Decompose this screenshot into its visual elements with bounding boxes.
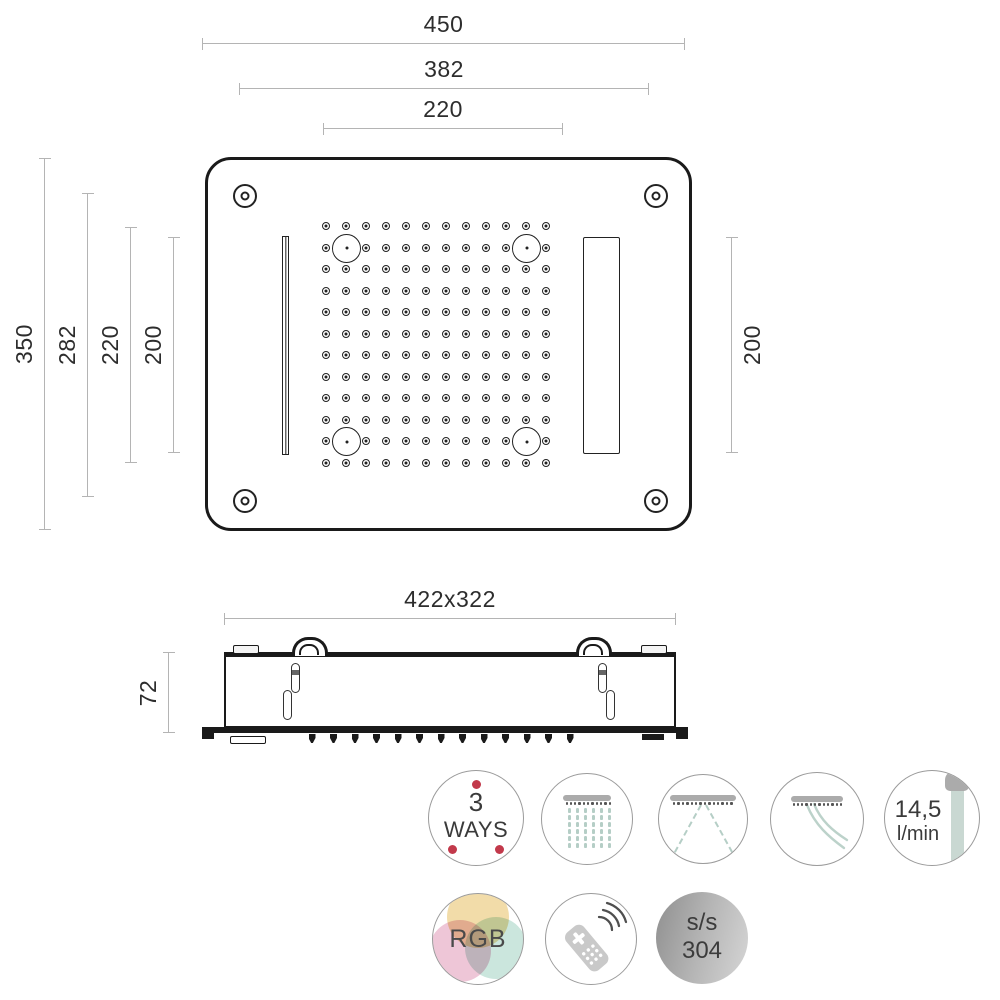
inner-slot-right-upper xyxy=(598,663,607,693)
rain-nozzle xyxy=(402,373,410,381)
rain-nozzle xyxy=(522,222,530,230)
rain-nozzle xyxy=(542,437,550,445)
icon-nozzle-dot xyxy=(726,802,728,805)
dim-left-350-label: 350 xyxy=(11,324,38,364)
rain-nozzle xyxy=(322,459,330,467)
side-nozzle-tooth xyxy=(545,734,552,743)
rain-nozzle xyxy=(542,351,550,359)
stainless-label-bottom: 304 xyxy=(656,938,748,964)
rain-nozzle xyxy=(542,308,550,316)
rain-nozzle xyxy=(422,459,430,467)
side-nozzle-tooth xyxy=(524,734,531,743)
rain-nozzle xyxy=(362,394,370,402)
side-nozzle-tooth xyxy=(481,734,488,743)
rain-nozzle xyxy=(442,244,450,252)
rain-nozzle xyxy=(522,265,530,273)
rain-nozzle xyxy=(382,308,390,316)
rain-nozzle xyxy=(342,416,350,424)
rain-nozzle xyxy=(402,308,410,316)
icon-nozzle-dot xyxy=(578,802,580,805)
rain-nozzle xyxy=(402,265,410,273)
rain-drop xyxy=(584,815,587,820)
waterfall-streams xyxy=(771,773,863,865)
icon-nozzle-dot xyxy=(673,802,675,805)
icon-nozzle-dot xyxy=(805,803,807,806)
mounting-ring-right-inner xyxy=(583,644,603,655)
rain-nozzle xyxy=(442,351,450,359)
rain-nozzle xyxy=(422,265,430,273)
rain-nozzle xyxy=(322,437,330,445)
inner-slot-right-lower xyxy=(606,690,615,720)
dim-left-282-label: 282 xyxy=(54,325,81,365)
rain-nozzle xyxy=(382,351,390,359)
icon-nozzle-dot xyxy=(717,802,719,805)
dim-side-72: 72 xyxy=(168,652,169,733)
rain-drop xyxy=(584,836,587,841)
rain-nozzle xyxy=(542,330,550,338)
rain-nozzle xyxy=(482,394,490,402)
rain-nozzle xyxy=(462,330,470,338)
rain-drop xyxy=(592,822,595,827)
rain-drop xyxy=(600,815,603,820)
rain-drop xyxy=(576,836,579,841)
rain-nozzle xyxy=(502,373,510,381)
rain-nozzle xyxy=(442,308,450,316)
rain-nozzle xyxy=(542,394,550,402)
inner-slot-left-lower xyxy=(283,690,292,720)
rain-nozzle xyxy=(502,287,510,295)
rain-nozzle xyxy=(422,287,430,295)
rain-nozzle xyxy=(422,222,430,230)
rain-drop xyxy=(600,822,603,827)
rain-nozzle xyxy=(402,437,410,445)
rain-nozzle xyxy=(482,244,490,252)
rain-drop xyxy=(608,808,611,813)
icon-nozzle-dot xyxy=(730,802,732,805)
side-nozzle-tooth xyxy=(438,734,445,743)
rain-nozzle xyxy=(382,244,390,252)
dim-top-382-label: 382 xyxy=(424,56,464,83)
rain-nozzle xyxy=(422,373,430,381)
rain-drop xyxy=(592,829,595,834)
rain-drop xyxy=(568,822,571,827)
rgb-light-icon: RGB xyxy=(432,893,524,985)
side-nozzle-tooth xyxy=(395,734,402,743)
rain-nozzle xyxy=(442,459,450,467)
rain-nozzle xyxy=(442,265,450,273)
rain-nozzle xyxy=(342,308,350,316)
rain-nozzle xyxy=(362,351,370,359)
dim-left-350: 350 xyxy=(44,158,45,530)
rain-head-bar xyxy=(563,795,611,801)
icon-nozzle-dot xyxy=(831,803,833,806)
rain-nozzle xyxy=(382,265,390,273)
rain-nozzle xyxy=(542,459,550,467)
dim-left-220: 220 xyxy=(130,227,131,463)
rain-nozzle xyxy=(502,308,510,316)
rain-nozzle xyxy=(322,244,330,252)
rain-drop xyxy=(576,829,579,834)
flange-end-right xyxy=(676,732,688,739)
rain-nozzle xyxy=(482,416,490,424)
dim-top-450: 450 xyxy=(202,43,685,44)
top-clip-right xyxy=(641,645,667,654)
rain-nozzle xyxy=(442,287,450,295)
waterfall-spray-icon xyxy=(770,772,864,866)
rain-nozzle xyxy=(442,416,450,424)
shower-head-top-view xyxy=(205,157,692,531)
rain-nozzle xyxy=(322,330,330,338)
rain-nozzle xyxy=(402,330,410,338)
rain-drop xyxy=(568,836,571,841)
dim-left-200-label: 200 xyxy=(140,325,167,365)
icon-nozzle-dot xyxy=(574,802,576,805)
rain-drop xyxy=(576,808,579,813)
inner-slot-left-upper xyxy=(291,663,300,693)
rain-drop xyxy=(592,843,595,848)
rain-nozzle xyxy=(522,416,530,424)
rain-nozzle xyxy=(502,330,510,338)
icon-nozzle-dot xyxy=(793,803,795,806)
dim-side-422x322-label: 422x322 xyxy=(404,586,496,613)
side-nozzle-tooth xyxy=(502,734,509,743)
dim-top-382: 382 xyxy=(239,88,649,89)
ceiling-flange xyxy=(202,727,688,733)
rain-nozzle xyxy=(382,459,390,467)
rain-nozzle xyxy=(522,459,530,467)
icon-nozzle-dot xyxy=(699,802,701,805)
rain-nozzle xyxy=(442,373,450,381)
rain-nozzle xyxy=(422,416,430,424)
led-spotlight xyxy=(332,234,361,263)
rain-nozzle xyxy=(342,373,350,381)
rain-nozzle xyxy=(322,265,330,273)
icon-nozzle-dot xyxy=(713,802,715,805)
rain-nozzle xyxy=(342,459,350,467)
icon-nozzle-dot xyxy=(591,802,593,805)
led-spotlight xyxy=(512,234,541,263)
flow-pipe-cap xyxy=(945,771,969,791)
dim-right-200: 200 xyxy=(731,237,732,453)
rain-drop xyxy=(576,815,579,820)
rain-nozzle xyxy=(362,308,370,316)
rain-drop xyxy=(584,808,587,813)
dim-left-282: 282 xyxy=(87,193,88,497)
rain-drop xyxy=(608,815,611,820)
rain-nozzle xyxy=(382,287,390,295)
dim-side-72-label: 72 xyxy=(135,679,162,706)
rain-nozzle xyxy=(322,394,330,402)
rain-nozzle xyxy=(462,265,470,273)
three-ways-number: 3 xyxy=(429,787,523,818)
rain-nozzle xyxy=(382,416,390,424)
rain-spray-icon xyxy=(541,773,633,865)
rain-drop xyxy=(600,843,603,848)
rain-nozzle xyxy=(542,287,550,295)
rain-nozzle xyxy=(322,308,330,316)
rain-drop xyxy=(584,822,587,827)
icon-nozzle-dot xyxy=(708,802,710,805)
rain-nozzle xyxy=(442,222,450,230)
rain-nozzle xyxy=(382,437,390,445)
rain-nozzle xyxy=(442,330,450,338)
rgb-label: RGB xyxy=(433,925,523,954)
rain-nozzle xyxy=(462,351,470,359)
way-dot-bottom-right xyxy=(495,845,504,854)
dim-right-200-label: 200 xyxy=(739,325,766,365)
rain-nozzle xyxy=(402,416,410,424)
side-nozzle-tooth xyxy=(459,734,466,743)
rain-nozzle xyxy=(502,459,510,467)
rain-nozzle xyxy=(542,244,550,252)
icon-nozzle-dot xyxy=(566,802,568,805)
rain-nozzle xyxy=(382,373,390,381)
flow-rate-unit: l/min xyxy=(889,823,947,845)
rain-nozzle xyxy=(362,222,370,230)
rain-nozzle xyxy=(522,287,530,295)
mist-spray-icon xyxy=(658,774,748,864)
dim-top-450-label: 450 xyxy=(424,11,464,38)
rain-nozzle xyxy=(342,394,350,402)
rain-nozzle xyxy=(322,373,330,381)
rain-nozzle xyxy=(422,394,430,402)
icon-nozzle-dot xyxy=(583,802,585,805)
rain-nozzle xyxy=(402,459,410,467)
rain-nozzle xyxy=(362,265,370,273)
rain-nozzle xyxy=(422,330,430,338)
rain-drop xyxy=(608,822,611,827)
rain-nozzle xyxy=(382,394,390,402)
rain-nozzle xyxy=(362,244,370,252)
rain-nozzle xyxy=(462,244,470,252)
rain-nozzle xyxy=(502,222,510,230)
rain-nozzle xyxy=(362,416,370,424)
icon-nozzle-dot xyxy=(797,803,799,806)
rain-nozzle xyxy=(362,330,370,338)
dim-top-220-label: 220 xyxy=(423,96,463,123)
rain-nozzle xyxy=(342,330,350,338)
rain-nozzle xyxy=(422,244,430,252)
rain-nozzle xyxy=(502,265,510,273)
rain-nozzle xyxy=(342,222,350,230)
rain-nozzle xyxy=(482,308,490,316)
remote-control-graphic xyxy=(546,894,636,984)
mounting-ring-left-inner xyxy=(299,644,319,655)
rain-nozzle xyxy=(482,373,490,381)
rain-nozzle xyxy=(362,373,370,381)
icon-nozzle-dot xyxy=(721,802,723,805)
three-ways-word: WAYS xyxy=(429,817,523,843)
rain-drop xyxy=(608,829,611,834)
rain-nozzle xyxy=(482,459,490,467)
rain-drop xyxy=(608,836,611,841)
rain-nozzle xyxy=(362,437,370,445)
rain-nozzle xyxy=(322,222,330,230)
rain-drop xyxy=(600,808,603,813)
rain-drop xyxy=(584,843,587,848)
rain-nozzle xyxy=(442,437,450,445)
remote-control-icon xyxy=(545,893,637,985)
stainless-steel-icon: s/s 304 xyxy=(656,892,748,984)
rain-nozzle xyxy=(402,244,410,252)
rain-nozzle xyxy=(482,351,490,359)
technical-drawing-canvas: 450 382 220 350 282 220 200 200 422x322 … xyxy=(0,0,1000,1000)
rain-nozzle xyxy=(522,394,530,402)
icon-nozzle-dot xyxy=(695,802,697,805)
icon-nozzle-dot xyxy=(682,802,684,805)
rain-nozzle xyxy=(322,287,330,295)
rain-drop xyxy=(608,843,611,848)
rain-nozzle xyxy=(322,351,330,359)
rain-nozzle xyxy=(422,308,430,316)
rain-nozzle xyxy=(522,308,530,316)
rain-nozzle xyxy=(542,222,550,230)
rain-drop xyxy=(568,808,571,813)
icon-nozzle-dot xyxy=(704,802,706,805)
rain-drop xyxy=(568,815,571,820)
rain-drop xyxy=(576,843,579,848)
icon-nozzle-dot xyxy=(596,802,598,805)
mist-jet-left xyxy=(674,805,702,853)
icon-nozzle-dot xyxy=(677,802,679,805)
rain-nozzle xyxy=(482,222,490,230)
rain-nozzle xyxy=(462,373,470,381)
rain-nozzle xyxy=(542,373,550,381)
rain-nozzle xyxy=(402,394,410,402)
rain-nozzle xyxy=(502,437,510,445)
rain-drop xyxy=(592,808,595,813)
led-spotlight xyxy=(332,427,361,456)
rain-nozzle xyxy=(402,287,410,295)
mist-jet-right xyxy=(705,805,733,853)
rain-nozzle xyxy=(462,437,470,445)
side-nozzle-tooth xyxy=(352,734,359,743)
rain-nozzle xyxy=(342,265,350,273)
rain-nozzle xyxy=(342,351,350,359)
rain-drop xyxy=(592,815,595,820)
icon-nozzle-dot xyxy=(600,802,602,805)
rain-nozzle xyxy=(522,330,530,338)
rain-drop xyxy=(600,836,603,841)
led-spotlight xyxy=(512,427,541,456)
icon-nozzle-dot xyxy=(810,803,812,806)
rain-nozzle xyxy=(522,351,530,359)
rain-nozzle xyxy=(462,308,470,316)
dim-top-220: 220 xyxy=(323,128,563,129)
dim-left-220-label: 220 xyxy=(97,325,124,365)
rain-nozzle xyxy=(462,459,470,467)
rain-drop xyxy=(592,836,595,841)
icon-nozzle-dot xyxy=(827,803,829,806)
side-nozzle-tooth xyxy=(416,734,423,743)
three-ways-icon: 3 WAYS xyxy=(428,770,524,866)
icon-nozzle-dot xyxy=(823,803,825,806)
rain-nozzle xyxy=(482,330,490,338)
rain-nozzle xyxy=(542,416,550,424)
rain-nozzle xyxy=(422,351,430,359)
rain-nozzle xyxy=(462,416,470,424)
icon-nozzle-dot xyxy=(587,802,589,805)
rain-nozzle xyxy=(502,394,510,402)
icon-nozzle-dot xyxy=(570,802,572,805)
mist-head-bar xyxy=(670,795,736,801)
bottom-clip-left xyxy=(230,736,266,744)
rain-nozzle xyxy=(342,287,350,295)
side-nozzle-tooth xyxy=(567,734,574,743)
rain-drop xyxy=(600,829,603,834)
rain-nozzle xyxy=(462,394,470,402)
rain-nozzle xyxy=(462,222,470,230)
side-nozzle-tooth xyxy=(309,734,316,743)
rain-nozzle xyxy=(482,265,490,273)
rain-drop xyxy=(576,822,579,827)
rain-drop xyxy=(568,843,571,848)
icon-nozzle-dot xyxy=(818,803,820,806)
rain-nozzle xyxy=(502,416,510,424)
top-clip-left xyxy=(233,645,259,654)
rain-nozzle xyxy=(542,265,550,273)
rain-nozzle xyxy=(362,287,370,295)
rain-drop xyxy=(584,829,587,834)
side-nozzle-tooth xyxy=(373,734,380,743)
flow-rate-value: 14,5 xyxy=(889,797,947,824)
rain-nozzle xyxy=(402,222,410,230)
icon-nozzle-dot xyxy=(686,802,688,805)
icon-nozzle-dot xyxy=(691,802,693,805)
rain-nozzle xyxy=(382,330,390,338)
rain-nozzle xyxy=(402,351,410,359)
rain-nozzle xyxy=(522,373,530,381)
rain-drop xyxy=(568,829,571,834)
flow-rate-icon: 14,5 l/min xyxy=(884,770,980,866)
bottom-clip-right xyxy=(642,734,664,740)
rain-nozzle xyxy=(442,394,450,402)
dim-left-200: 200 xyxy=(173,237,174,453)
icon-nozzle-dot xyxy=(840,803,842,806)
icon-nozzle-dot xyxy=(836,803,838,806)
rain-nozzle xyxy=(502,244,510,252)
stainless-label-top: s/s xyxy=(656,910,748,936)
rain-nozzle xyxy=(322,416,330,424)
rain-nozzle xyxy=(502,351,510,359)
rain-nozzle xyxy=(482,437,490,445)
rain-nozzle xyxy=(422,437,430,445)
rain-nozzle xyxy=(382,222,390,230)
flange-end-left xyxy=(202,732,214,739)
icon-nozzle-dot xyxy=(609,802,611,805)
nozzle-grid xyxy=(208,160,689,528)
rain-nozzle xyxy=(362,459,370,467)
side-nozzle-tooth xyxy=(330,734,337,743)
rain-nozzle xyxy=(482,287,490,295)
way-dot-bottom-left xyxy=(448,845,457,854)
icon-nozzle-dot xyxy=(604,802,606,805)
rain-nozzle xyxy=(462,287,470,295)
dim-side-422x322: 422x322 xyxy=(224,618,676,619)
